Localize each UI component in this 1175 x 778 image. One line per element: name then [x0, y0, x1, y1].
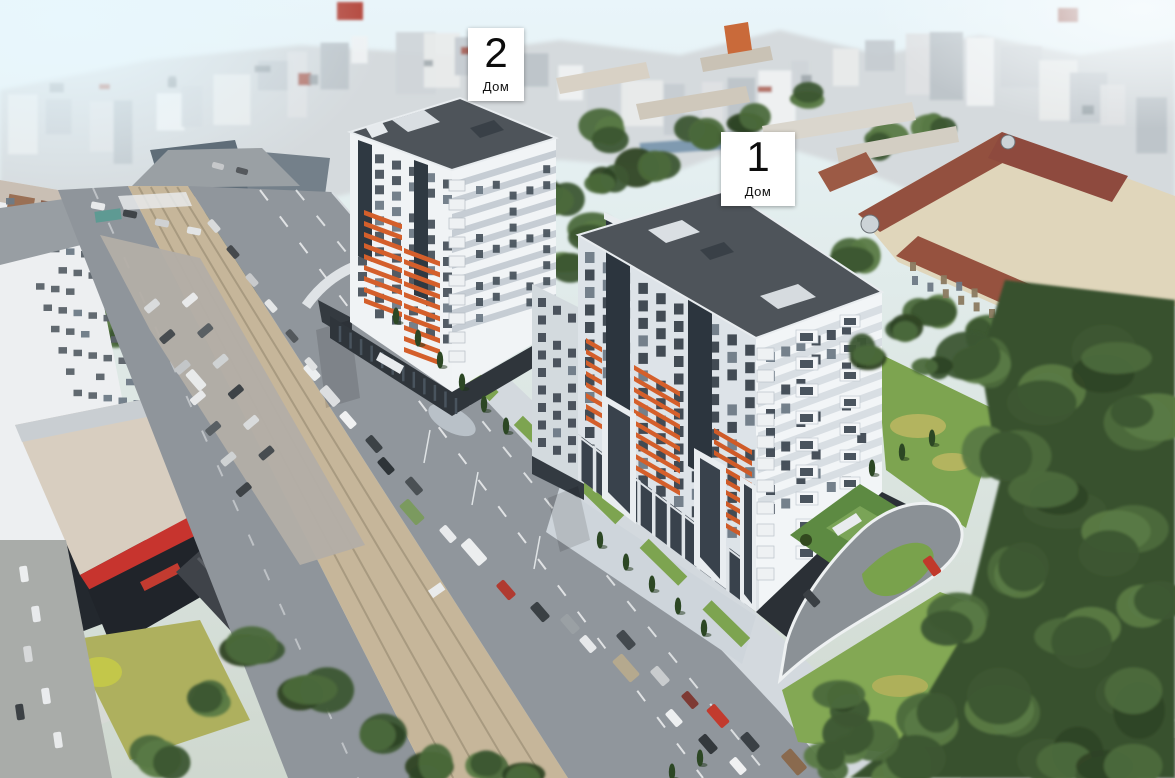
window	[568, 384, 576, 393]
marker-building-2: 2 Дом	[468, 28, 524, 101]
balcony-glass	[800, 468, 813, 476]
pilaster	[637, 478, 641, 526]
window	[585, 305, 595, 316]
balcony-glass	[800, 441, 813, 449]
tree	[1105, 667, 1162, 714]
tree	[225, 626, 278, 665]
window	[51, 326, 60, 333]
tree	[1111, 396, 1154, 428]
tree	[1007, 380, 1077, 425]
window	[638, 283, 648, 294]
window	[674, 304, 684, 315]
balcony	[757, 392, 774, 404]
window	[972, 288, 978, 297]
tree	[638, 151, 672, 182]
balcony	[757, 458, 774, 470]
cypress-tree	[675, 598, 681, 615]
window	[674, 496, 684, 507]
balcony-glass	[844, 453, 856, 460]
window	[538, 333, 546, 342]
window	[745, 415, 755, 426]
window	[656, 346, 666, 357]
tree	[584, 173, 615, 193]
tree	[1079, 530, 1139, 576]
window	[74, 310, 83, 317]
cypress-tree	[649, 576, 655, 593]
window	[745, 362, 755, 373]
window	[543, 229, 550, 237]
window	[375, 170, 384, 179]
balcony	[449, 256, 465, 267]
balcony-glass	[844, 372, 856, 379]
balcony	[757, 414, 774, 426]
window	[656, 293, 666, 304]
window	[745, 397, 755, 408]
window	[956, 282, 962, 291]
cypress-tree	[459, 374, 465, 391]
tree	[813, 680, 866, 709]
tree	[470, 750, 502, 776]
tree	[1008, 471, 1078, 507]
balcony-glass	[800, 495, 813, 503]
window	[74, 270, 83, 277]
window	[538, 298, 546, 307]
balcony	[449, 313, 465, 324]
cypress-tree	[899, 444, 905, 461]
window	[568, 401, 576, 410]
marker-2-caption: Дом	[483, 79, 510, 94]
window	[585, 322, 595, 333]
balcony-glass	[800, 549, 813, 557]
balcony	[449, 275, 465, 286]
window	[553, 428, 561, 437]
window	[89, 392, 98, 399]
window	[59, 267, 68, 274]
window	[538, 403, 546, 412]
window	[927, 283, 933, 292]
window	[781, 385, 790, 395]
portal-glass	[744, 484, 752, 604]
window	[543, 245, 550, 253]
balcony	[449, 294, 465, 305]
marker-2-number: 2	[484, 31, 507, 75]
tree	[893, 321, 918, 342]
window	[781, 404, 790, 414]
window	[6, 198, 15, 205]
window	[375, 201, 384, 210]
window	[375, 154, 384, 163]
marker-building-1: 1 Дом	[721, 132, 795, 206]
balcony-glass	[844, 480, 856, 487]
window	[553, 393, 561, 402]
window	[745, 380, 755, 391]
window	[51, 286, 60, 293]
building-2	[316, 98, 560, 416]
window	[538, 368, 546, 377]
balcony-glass	[800, 360, 813, 368]
window	[727, 422, 737, 433]
window	[674, 339, 684, 350]
window	[104, 355, 113, 362]
window	[66, 328, 75, 335]
window	[781, 499, 790, 509]
window	[392, 192, 401, 201]
balcony	[757, 436, 774, 448]
scene-svg	[0, 0, 1175, 778]
window	[375, 185, 384, 194]
orange-block	[724, 22, 752, 54]
window	[476, 250, 483, 258]
balcony	[757, 348, 774, 360]
window	[89, 352, 98, 359]
window	[766, 447, 775, 457]
window	[941, 275, 947, 284]
window	[543, 181, 550, 189]
cypress-tree	[415, 330, 421, 347]
window	[727, 404, 737, 415]
window	[910, 262, 916, 271]
pilaster	[682, 512, 686, 560]
tree	[359, 719, 395, 750]
window	[568, 454, 576, 463]
window	[638, 318, 648, 329]
window	[493, 277, 500, 285]
window	[510, 240, 517, 248]
window	[674, 356, 684, 367]
window	[543, 261, 550, 269]
window	[585, 270, 595, 281]
window	[493, 245, 500, 253]
window	[74, 390, 83, 397]
window	[568, 366, 576, 375]
window	[392, 176, 401, 185]
window	[553, 341, 561, 350]
window	[59, 347, 68, 354]
balcony	[757, 568, 774, 580]
marker-1-number: 1	[746, 135, 769, 179]
tree	[852, 345, 884, 365]
window	[553, 358, 561, 367]
cypress-tree	[697, 750, 703, 767]
cypress-tree	[481, 396, 487, 413]
window	[958, 296, 964, 305]
balcony	[449, 199, 465, 210]
cypress-tree	[597, 532, 603, 549]
window	[585, 252, 595, 263]
tree	[917, 693, 957, 733]
cypress-tree	[503, 418, 509, 435]
window	[727, 369, 737, 380]
balcony-glass	[844, 318, 856, 325]
window	[553, 411, 561, 420]
window	[476, 234, 483, 242]
window	[81, 331, 90, 338]
tree	[793, 82, 823, 103]
window	[727, 334, 737, 345]
pilaster	[667, 501, 671, 549]
cypress-tree	[929, 430, 935, 447]
window	[553, 446, 561, 455]
window	[89, 312, 98, 319]
window	[585, 427, 595, 438]
balcony	[449, 351, 465, 362]
turret-dome	[861, 215, 879, 233]
mid-wing	[532, 284, 584, 500]
window	[538, 386, 546, 395]
tree	[592, 126, 629, 153]
cypress-tree	[393, 308, 399, 325]
tree	[979, 432, 1032, 482]
balcony-glass	[800, 387, 813, 395]
window	[781, 461, 790, 471]
tree	[998, 542, 1048, 591]
window	[59, 307, 68, 314]
pilaster	[578, 434, 582, 482]
tree	[689, 118, 725, 150]
window	[656, 311, 666, 322]
pilaster	[593, 445, 597, 493]
window	[476, 314, 483, 322]
tree	[817, 742, 845, 771]
window	[66, 368, 75, 375]
courtyard-tree	[800, 534, 812, 546]
window	[568, 436, 576, 445]
tree	[282, 675, 337, 705]
tree	[1051, 616, 1112, 668]
tree	[1081, 342, 1152, 374]
balcony-glass	[844, 426, 856, 433]
window	[96, 374, 105, 381]
tree	[921, 610, 973, 645]
window	[538, 351, 546, 360]
balcony	[757, 502, 774, 514]
turret-dome	[1001, 135, 1015, 149]
balcony-glass	[800, 414, 813, 422]
balcony	[449, 180, 465, 191]
window	[510, 224, 517, 232]
balcony	[757, 370, 774, 382]
tree	[912, 358, 938, 375]
window	[553, 306, 561, 315]
window	[568, 419, 576, 428]
balcony	[449, 332, 465, 343]
window	[943, 289, 949, 298]
lawn-dry-patch	[890, 414, 946, 438]
window	[74, 350, 83, 357]
window	[543, 165, 550, 173]
window	[392, 161, 401, 170]
tree	[967, 668, 1031, 725]
window	[781, 442, 790, 452]
window	[538, 438, 546, 447]
window	[44, 305, 53, 312]
window	[674, 374, 684, 385]
window	[827, 349, 836, 359]
cypress-tree	[701, 620, 707, 637]
balcony	[449, 237, 465, 248]
window	[538, 316, 546, 325]
window	[66, 248, 75, 255]
balcony-glass	[844, 399, 856, 406]
window	[674, 321, 684, 332]
window	[510, 208, 517, 216]
window	[493, 293, 500, 301]
balcony	[449, 218, 465, 229]
cypress-tree	[869, 460, 875, 477]
balcony-glass	[800, 333, 813, 341]
balcony	[757, 546, 774, 558]
window	[375, 309, 384, 318]
marker-1-caption: Дом	[745, 184, 772, 199]
window	[476, 186, 483, 194]
window	[392, 207, 401, 216]
balcony	[757, 480, 774, 492]
window	[585, 287, 595, 298]
window	[656, 328, 666, 339]
window	[493, 181, 500, 189]
window	[510, 192, 517, 200]
window	[727, 352, 737, 363]
window	[538, 421, 546, 430]
balcony	[757, 524, 774, 536]
window	[638, 300, 648, 311]
tree	[187, 683, 222, 713]
window	[974, 302, 980, 311]
window	[476, 282, 483, 290]
window	[66, 288, 75, 295]
pilaster	[652, 490, 656, 538]
window	[543, 277, 550, 285]
cypress-tree	[623, 554, 629, 571]
window	[510, 272, 517, 280]
window	[638, 353, 648, 364]
window	[745, 345, 755, 356]
window	[912, 276, 918, 285]
pilaster	[726, 545, 730, 593]
aerial-render-photo: 2 Дом 1 Дом	[0, 0, 1175, 778]
window	[827, 482, 836, 492]
window	[638, 335, 648, 346]
window	[781, 347, 790, 357]
window	[36, 283, 45, 290]
window	[526, 186, 533, 194]
window	[568, 349, 576, 358]
window	[476, 298, 483, 306]
cypress-tree	[437, 352, 443, 369]
window	[568, 314, 576, 323]
window	[827, 330, 836, 340]
window	[104, 395, 113, 402]
window	[526, 234, 533, 242]
